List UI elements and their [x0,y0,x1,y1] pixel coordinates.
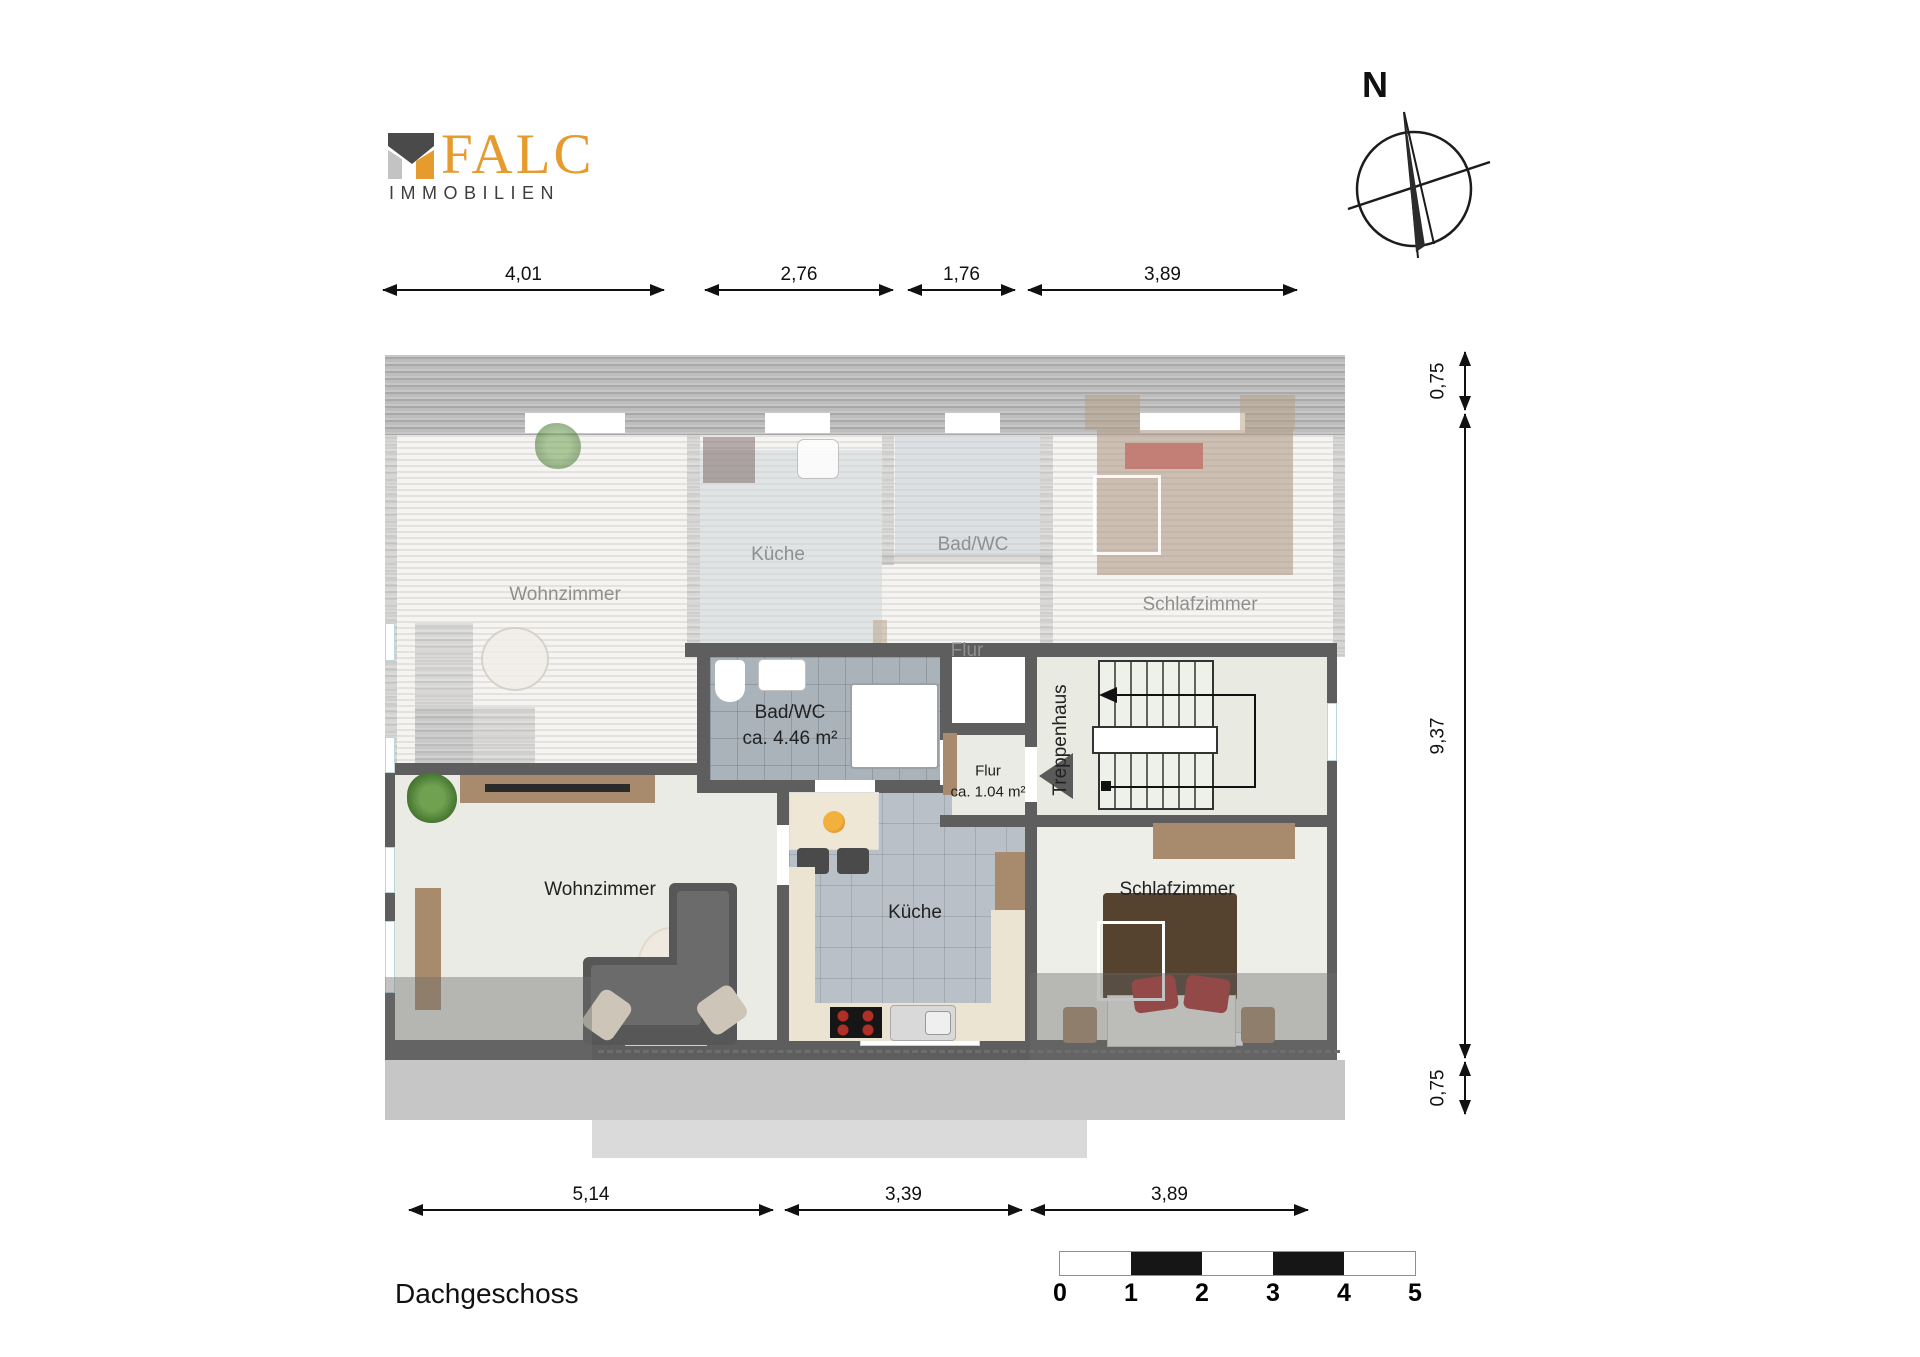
dimension-label: 0,75 [1428,363,1450,400]
scale-bar-segment [1202,1252,1273,1275]
roof-slope-overlay-right [1030,973,1337,1060]
dimension-right-075-top: 0,75 [1464,352,1466,410]
room-label-kueche: Küche [888,902,942,924]
bath-sink [758,659,806,691]
staircase [1037,657,1327,815]
scale-bar-segment [1060,1252,1131,1275]
dimension-label: 3,89 [1151,1184,1188,1206]
dimension-label: 2,76 [781,264,818,286]
dimension-right-075-bottom: 0,75 [1464,1062,1466,1114]
dimension-label: 9,37 [1428,718,1450,755]
roof-slope-overlay-left [385,977,592,1060]
dimension-label: 1,76 [943,264,980,286]
wall [697,643,710,793]
dimension-label: 5,14 [573,1184,610,1206]
upper-bed-frame [1093,475,1161,555]
wardrobe [1153,823,1295,859]
room-label-upper-flur: Flur [951,640,984,662]
faded-wall-2 [882,435,894,565]
faded-wall-1 [687,435,700,657]
room-label-schlafzimmer: Schlafzimmer [1119,879,1234,901]
dimension-top-401: 4,01 [383,289,664,291]
sofa-cushion [677,891,729,1001]
roof-apron-light [592,1120,1087,1158]
roof-edge-dashed-line [598,1050,1340,1053]
tv [485,784,630,792]
compass-icon [1338,62,1508,262]
sink-basin [925,1011,951,1035]
upper-bed-headboard-left [1085,395,1140,430]
upper-sofa-bottom [415,707,535,771]
kitchen-stool [995,852,1025,910]
window-top-2 [765,413,830,433]
stove [830,1007,882,1038]
scale-bar [1060,1252,1415,1275]
shower [850,683,939,769]
counter-right [991,910,1025,1010]
window-top-3 [945,413,1000,433]
window-left-3 [385,847,395,893]
chair [837,848,869,874]
room-label-treppenhaus: Treppenhaus [1050,684,1072,795]
floor-plan: Wohnzimmer Küche Bad/WC Schlafzimmer Flu… [385,355,1345,1120]
roof-apron [385,1060,1345,1120]
wall [685,643,1337,657]
logo-subtitle-text: IMMOBILIEN [389,183,560,204]
falc-logo-icon [388,133,434,179]
fruit-bowl [823,811,845,833]
window-left-1 [385,623,395,661]
dimension-right-937: 9,37 [1464,414,1466,1058]
window-right [1327,703,1337,761]
upper-bed-pillow [1125,443,1203,469]
upper-plant [535,423,581,469]
dimension-label: 3,89 [1144,264,1181,286]
room-label-upper-wohnzimmer: Wohnzimmer [509,584,621,606]
room-label-upper-badwc: Bad/WC [938,534,1009,556]
floor-title: Dachgeschoss [395,1278,579,1310]
door-wohnzimmer-kueche [777,825,789,885]
door-flur-treppenhaus [1025,747,1037,802]
wall [940,815,1037,827]
window-left-2 [385,737,395,773]
dimension-label: 4,01 [505,264,542,286]
logo-brand-text: FALC [441,122,594,187]
toilet [715,660,745,702]
faded-wall-left [385,435,397,765]
upper-stove [703,437,755,483]
scale-bar-number: 3 [1266,1279,1280,1308]
room-label-wohnzimmer: Wohnzimmer [544,879,656,901]
scale-bar-number: 4 [1337,1279,1351,1308]
dimension-bottom-389: 3,89 [1031,1209,1308,1211]
floor-plan-page: FALC IMMOBILIEN N 4,01 2,76 1,76 3,89 0,… [0,0,1920,1357]
room-label-upper-kueche: Küche [751,544,805,566]
scale-bar-segment [1131,1252,1202,1275]
scale-bar-segment [1344,1252,1415,1275]
room-label-flur: Flur [975,763,1001,780]
counter-left [789,867,815,1005]
upper-sink [797,439,839,479]
scale-bar-number: 5 [1408,1279,1422,1308]
dimension-top-176: 1,76 [908,289,1015,291]
room-label-flur-area: ca. 1.04 m² [950,784,1025,801]
dimension-bottom-514: 5,14 [409,1209,773,1211]
scale-bar-number: 0 [1053,1279,1067,1308]
room-label-upper-schlafzimmer: Schlafzimmer [1142,594,1257,616]
upper-bed-headboard-right [1240,395,1295,430]
room-label-badwc-area: ca. 4.46 m² [742,728,837,750]
plant [407,773,457,823]
dimension-label: 3,39 [885,1184,922,1206]
dimension-top-276: 2,76 [705,289,893,291]
scale-bar-number: 1 [1124,1279,1138,1308]
room-label-badwc: Bad/WC [755,702,826,724]
dimension-label: 0,75 [1428,1070,1450,1107]
upper-round-table [481,627,549,691]
dimension-top-389: 3,89 [1028,289,1297,291]
scale-bar-segment [1273,1252,1344,1275]
dimension-bottom-339: 3,39 [785,1209,1022,1211]
faded-wall-3 [1040,435,1053,657]
scale-bar-number: 2 [1195,1279,1209,1308]
faded-wall-right [1333,435,1345,657]
